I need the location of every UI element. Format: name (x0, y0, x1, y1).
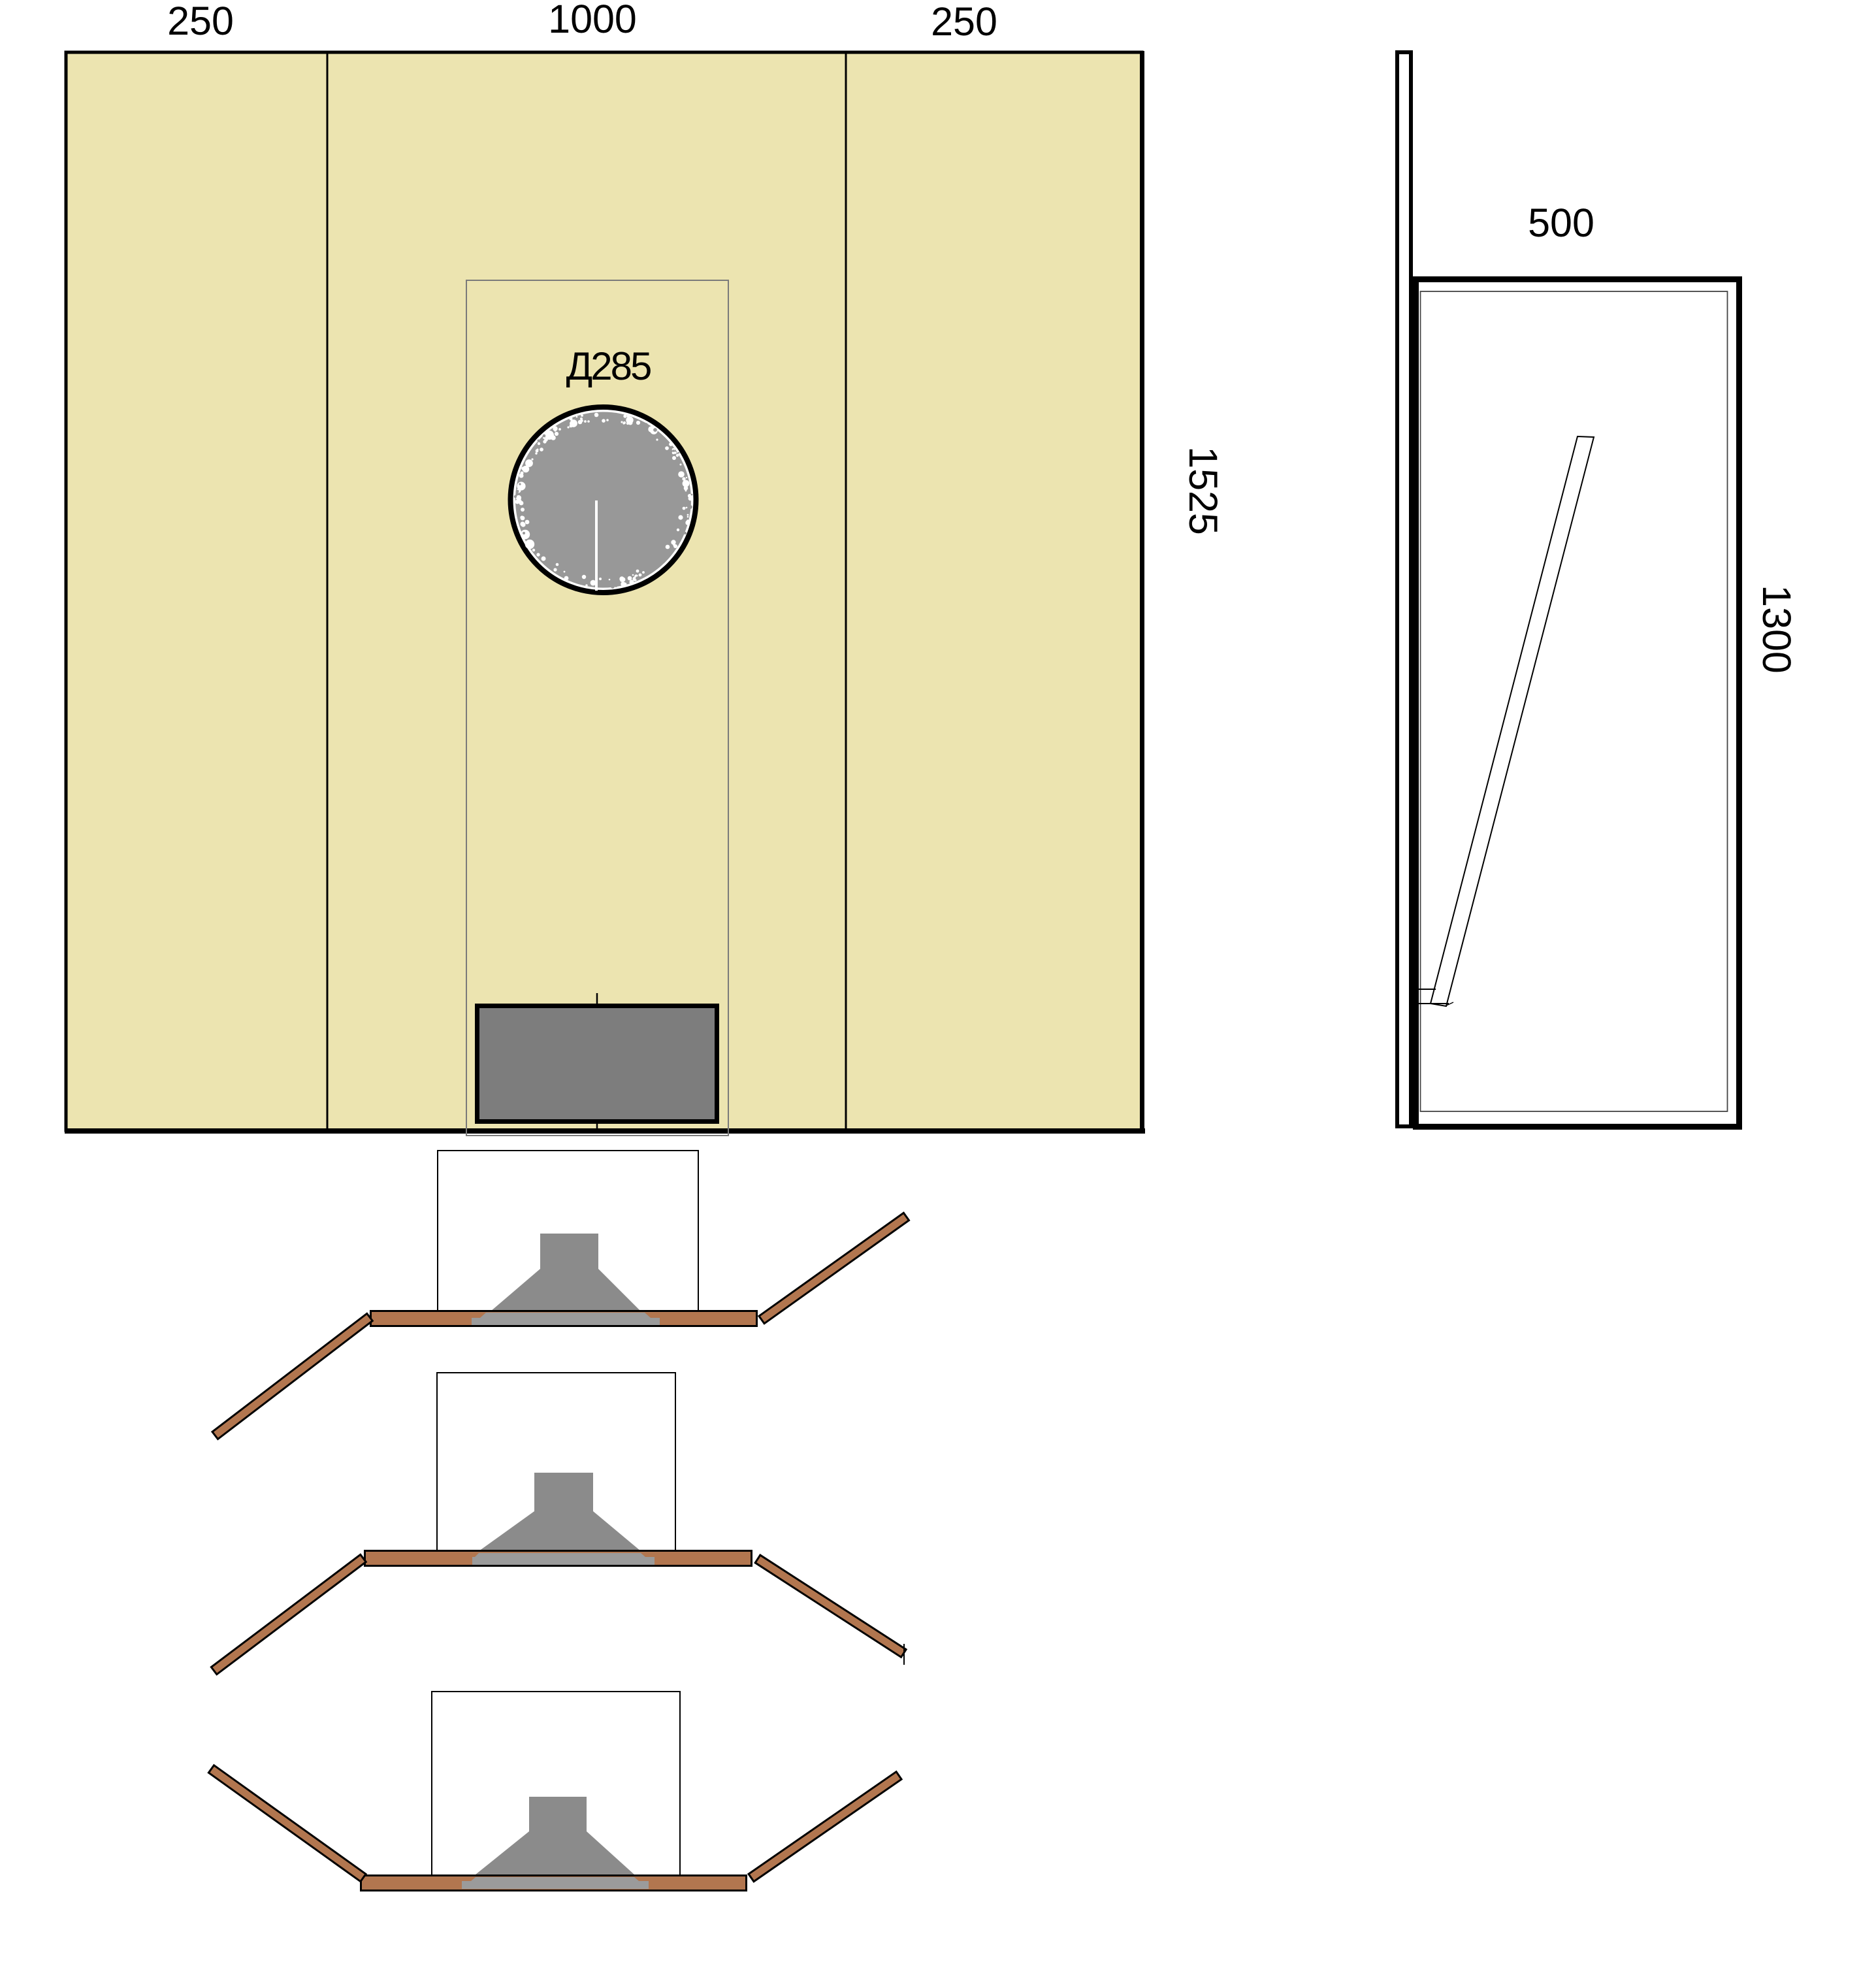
svg-text:1300: 1300 (1755, 585, 1799, 674)
svg-text:1000: 1000 (548, 0, 637, 41)
svg-text:250: 250 (931, 0, 997, 44)
svg-text:Д285: Д285 (566, 344, 651, 388)
svg-text:250: 250 (167, 0, 234, 43)
svg-text:1525: 1525 (1181, 446, 1225, 535)
svg-text:500: 500 (1528, 201, 1594, 245)
